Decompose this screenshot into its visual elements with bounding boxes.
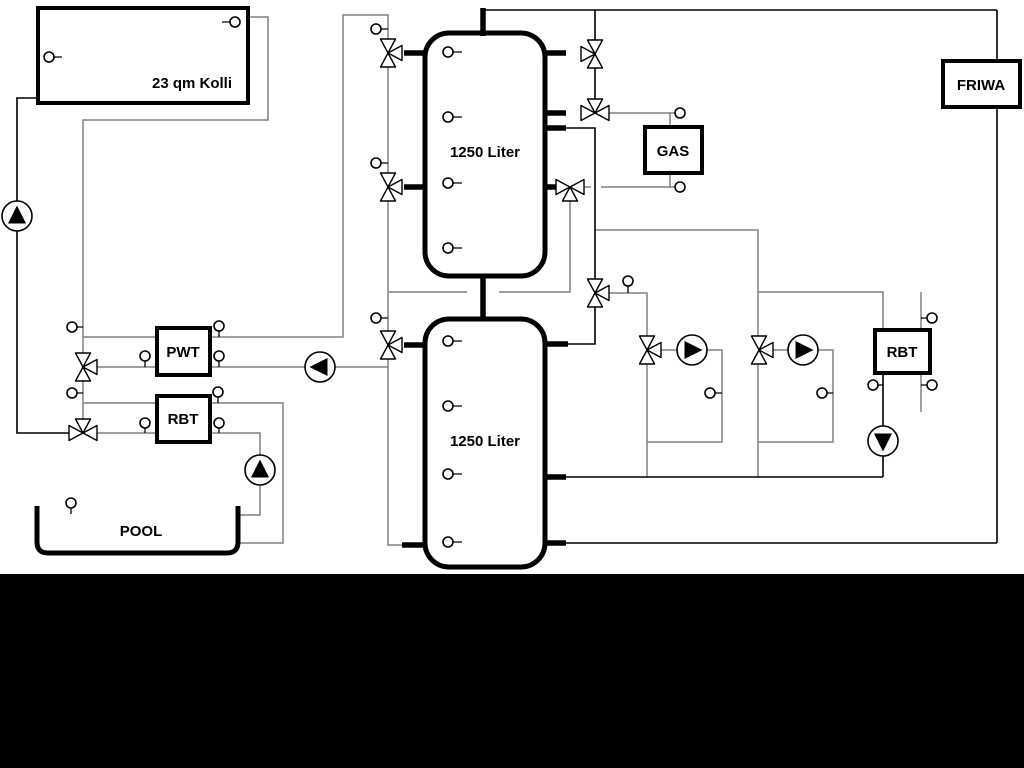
rbt-pool-label: RBT xyxy=(168,411,199,428)
temperature-sensor xyxy=(443,537,453,547)
temperature-sensor xyxy=(230,17,240,27)
pwt-label: PWT xyxy=(166,344,199,361)
temperature-sensor xyxy=(214,418,224,428)
temperature-sensor xyxy=(371,158,381,168)
schematic-page: 23 qm Kolli 1250 Liter 1250 Liter PWT RB… xyxy=(0,0,1024,768)
gas-label: GAS xyxy=(657,143,690,160)
temperature-sensor xyxy=(371,24,381,34)
temperature-sensor xyxy=(140,418,150,428)
pump-circuit-1 xyxy=(677,335,707,365)
footer-black-band xyxy=(0,574,1024,768)
temperature-sensor xyxy=(927,380,937,390)
temperature-sensor xyxy=(66,498,76,508)
temperature-sensor xyxy=(705,388,715,398)
temperature-sensor xyxy=(443,336,453,346)
pump-pool xyxy=(245,455,275,485)
collector-label: 23 qm Kolli xyxy=(152,75,232,92)
temperature-sensor xyxy=(675,182,685,192)
pump-rbt-right xyxy=(868,426,898,456)
temperature-sensor xyxy=(623,276,633,286)
tank-upper-label: 1250 Liter xyxy=(450,144,520,161)
pump-solar xyxy=(2,201,32,231)
tank-lower-label: 1250 Liter xyxy=(450,433,520,450)
temperature-sensor xyxy=(67,388,77,398)
pump-pwt xyxy=(305,352,335,382)
temperature-sensor xyxy=(443,47,453,57)
temperature-sensor xyxy=(140,351,150,361)
friwa-label: FRIWA xyxy=(957,77,1005,94)
pool-label: POOL xyxy=(120,523,163,540)
schematic-canvas: 23 qm Kolli 1250 Liter 1250 Liter PWT RB… xyxy=(0,0,1024,768)
temperature-sensor xyxy=(214,321,224,331)
temperature-sensor xyxy=(443,178,453,188)
temperature-sensor xyxy=(443,401,453,411)
temperature-sensor xyxy=(817,388,827,398)
temperature-sensor xyxy=(443,243,453,253)
temperature-sensor xyxy=(675,108,685,118)
temperature-sensor xyxy=(213,387,223,397)
temperature-sensor xyxy=(44,52,54,62)
temperature-sensor xyxy=(67,322,77,332)
temperature-sensor xyxy=(868,380,878,390)
temperature-sensor xyxy=(443,112,453,122)
pump-circuit-2 xyxy=(788,335,818,365)
temperature-sensor xyxy=(214,351,224,361)
temperature-sensor xyxy=(443,469,453,479)
temperature-sensor xyxy=(927,313,937,323)
temperature-sensor xyxy=(371,313,381,323)
rbt-right-label: RBT xyxy=(887,344,918,361)
